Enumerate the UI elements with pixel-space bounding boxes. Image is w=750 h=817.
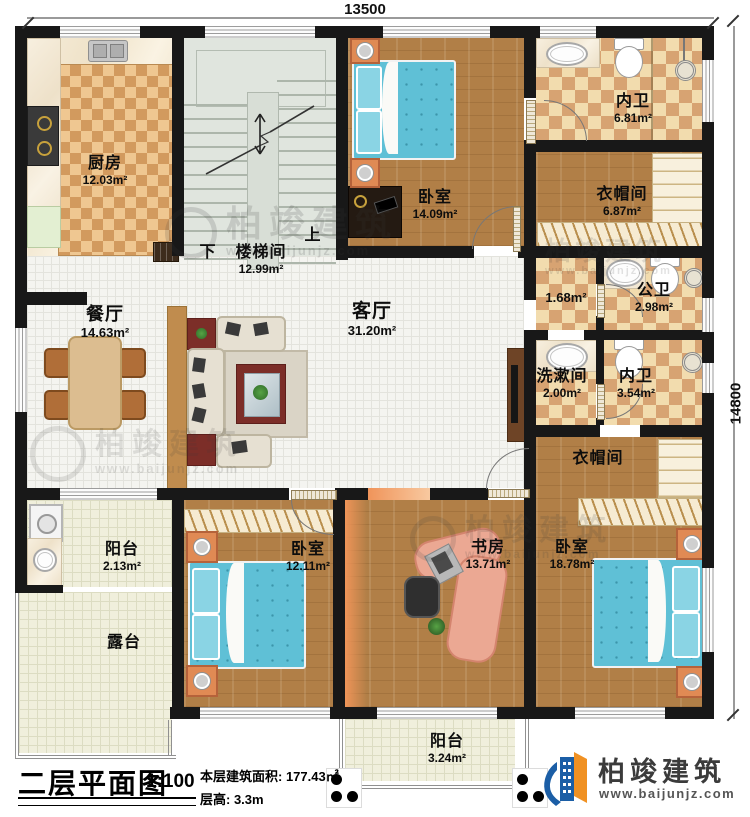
plant xyxy=(196,328,207,339)
column-dot xyxy=(517,774,528,785)
window xyxy=(702,60,714,122)
wall xyxy=(15,26,27,587)
window xyxy=(383,26,490,38)
plant xyxy=(428,618,445,635)
room-name: 内卫 xyxy=(576,368,696,386)
kitchen-hob xyxy=(88,40,128,62)
sink xyxy=(33,548,57,572)
room-area: 12.99m² xyxy=(201,262,321,276)
floor-area-text: 本层建筑面积: 177.43㎡ xyxy=(200,766,339,785)
room-area: 12.11m² xyxy=(248,559,368,573)
room-area: 3.54m² xyxy=(576,386,696,400)
bedroom-top-label: 卧室 14.09m² xyxy=(375,189,495,222)
stove-burner xyxy=(37,116,52,131)
brand-name: 柏竣建筑 xyxy=(598,750,726,789)
speaker xyxy=(354,195,367,208)
room-name: 厨房 xyxy=(45,155,165,173)
wall xyxy=(524,500,536,719)
brand-logo-icon xyxy=(540,750,592,810)
window xyxy=(540,26,596,38)
column-dot xyxy=(517,791,528,802)
balcony-left-label: 阳台 2.13m² xyxy=(62,541,182,574)
column-dot xyxy=(347,791,358,802)
lamp xyxy=(357,165,373,181)
bed-sheet xyxy=(648,560,666,662)
wall xyxy=(524,140,536,300)
door-leaf xyxy=(513,206,521,252)
cloak-top-label: 衣帽间 6.87m² xyxy=(562,186,682,219)
public-bath-label: 公卫 2.98m² xyxy=(594,282,714,315)
room-name: 卧室 xyxy=(375,189,495,207)
pillow xyxy=(672,566,700,612)
pillow xyxy=(356,110,382,154)
washer-drum xyxy=(37,514,57,534)
sofa-pillow xyxy=(253,322,269,336)
bath-mid-label: 内卫 3.54m² xyxy=(576,368,696,401)
dining-label: 餐厅 14.63m² xyxy=(45,304,165,340)
room-area: 18.78m² xyxy=(512,557,632,571)
door-leaf xyxy=(291,490,337,500)
room-name: 衣帽间 xyxy=(538,450,658,468)
lamp xyxy=(194,673,210,689)
wall xyxy=(157,488,289,500)
pillow xyxy=(192,568,220,614)
door-leaf xyxy=(526,100,536,144)
room-area: 6.87m² xyxy=(562,204,682,218)
lamp xyxy=(684,674,700,690)
wall xyxy=(172,26,184,256)
window xyxy=(60,26,140,38)
shower-head xyxy=(675,60,696,81)
column-dot xyxy=(331,791,342,802)
nightstand xyxy=(350,38,380,64)
room-area: 31.20m² xyxy=(312,323,432,339)
sliding-door xyxy=(377,707,497,719)
room-name: 露台 xyxy=(64,634,184,652)
bed-sheet xyxy=(382,62,398,154)
dining-chair xyxy=(118,348,146,378)
lamp xyxy=(194,539,210,555)
sofa-pillow xyxy=(225,322,241,337)
room-divider-cabinet xyxy=(167,306,187,496)
room-area: 14.63m² xyxy=(45,325,165,341)
wall xyxy=(335,488,368,500)
window xyxy=(200,707,330,719)
lamp xyxy=(684,536,700,552)
wall xyxy=(524,140,702,152)
pillow xyxy=(672,612,700,658)
title-underline xyxy=(18,797,196,806)
stair-direction-arrow xyxy=(186,100,336,180)
wall xyxy=(524,26,536,98)
wall xyxy=(15,585,63,593)
wall xyxy=(336,246,474,258)
sofa xyxy=(187,348,225,436)
pillow xyxy=(192,614,220,660)
wardrobe-shelves xyxy=(658,439,704,498)
room-name: 餐厅 xyxy=(45,304,165,325)
dimension-right-value: 14800 xyxy=(728,374,745,434)
room-area: 14.09m² xyxy=(375,207,495,221)
terrace-railing xyxy=(168,720,176,755)
sofa xyxy=(216,316,286,352)
room-area: 3.24m² xyxy=(387,751,507,765)
dimension-line-right xyxy=(733,26,735,719)
bath-top-label: 内卫 6.81m² xyxy=(573,93,693,126)
sofa-pillow xyxy=(192,357,206,373)
floor-plan: 13500 14800 xyxy=(0,0,750,817)
stairwell-label: 楼梯间 12.99m² xyxy=(201,244,321,277)
terrace-label: 露台 xyxy=(64,634,184,652)
nightstand xyxy=(186,665,218,697)
dining-table xyxy=(68,336,122,430)
kitchen-cabinet xyxy=(27,206,61,248)
wardrobe-hanging xyxy=(578,498,704,526)
room-name: 内卫 xyxy=(573,93,693,111)
room-area: 2.13m² xyxy=(62,559,182,573)
wall xyxy=(518,246,702,258)
pillow xyxy=(356,66,382,110)
room-name: 公卫 xyxy=(594,282,714,300)
washing-machine xyxy=(29,504,63,542)
window xyxy=(15,328,27,412)
room-name: 阳台 xyxy=(387,733,507,751)
sofa-pillow xyxy=(191,407,206,423)
stove-burner xyxy=(37,141,52,156)
wall xyxy=(596,258,604,284)
study-light-gradient xyxy=(345,500,367,707)
cloak-bottom-label: 衣帽间 xyxy=(538,450,658,468)
terrace-railing xyxy=(15,590,176,759)
bedroom-right-label: 卧室 18.78m² xyxy=(512,539,632,572)
kitchen-label: 厨房 12.03m² xyxy=(45,155,165,188)
window xyxy=(205,26,315,38)
bed-sheet xyxy=(226,563,244,663)
toilet-bowl xyxy=(615,46,643,78)
wardrobe-hanging xyxy=(537,222,704,248)
balcony-door-window xyxy=(60,488,157,500)
wall xyxy=(524,330,548,340)
plan-scale: 1:100 xyxy=(146,771,195,793)
wall xyxy=(430,488,488,500)
nightstand xyxy=(186,531,218,563)
room-area: 12.03m² xyxy=(45,173,165,187)
sofa-pillow xyxy=(192,383,206,399)
nightstand xyxy=(350,158,380,188)
wall xyxy=(640,425,702,437)
office-chair xyxy=(404,576,440,618)
bedroom-left-label: 卧室 12.11m² xyxy=(248,541,368,574)
sofa-pillow xyxy=(231,440,248,454)
dining-chair xyxy=(118,390,146,420)
window xyxy=(702,568,714,652)
room-name: 阳台 xyxy=(62,541,182,559)
room-name: 楼梯间 xyxy=(201,244,321,262)
room-name: 衣帽间 xyxy=(562,186,682,204)
wall xyxy=(336,26,348,260)
room-name: 卧室 xyxy=(512,539,632,557)
living-label: 客厅 31.20m² xyxy=(312,301,432,338)
window xyxy=(702,363,714,393)
wall xyxy=(524,425,600,437)
hob-burner xyxy=(110,44,124,58)
lamp xyxy=(357,43,373,59)
dimension-top-value: 13500 xyxy=(325,1,405,18)
room-name: 卧室 xyxy=(248,541,368,559)
room-name: 客厅 xyxy=(312,301,432,323)
wall xyxy=(172,500,184,719)
armchair xyxy=(216,434,272,468)
coffee-table xyxy=(236,364,286,424)
door-leaf xyxy=(488,489,530,498)
window xyxy=(575,707,665,719)
sink xyxy=(546,343,588,371)
brand-url: www.baijunjz.com xyxy=(599,786,735,801)
side-table xyxy=(187,318,216,350)
stair-up-label: 上 xyxy=(301,227,325,245)
sink xyxy=(546,42,588,66)
hob-burner xyxy=(93,44,107,58)
study-doorway xyxy=(368,488,430,500)
floor-height-text: 层高: 3.3m xyxy=(200,789,264,808)
wall xyxy=(15,488,60,500)
room-area: 2.98m² xyxy=(594,300,714,314)
room-area: 6.81m² xyxy=(573,111,693,125)
balcony-bottom-label: 阳台 3.24m² xyxy=(387,733,507,766)
wall xyxy=(333,500,345,719)
plant xyxy=(253,385,268,400)
side-table xyxy=(187,434,216,466)
